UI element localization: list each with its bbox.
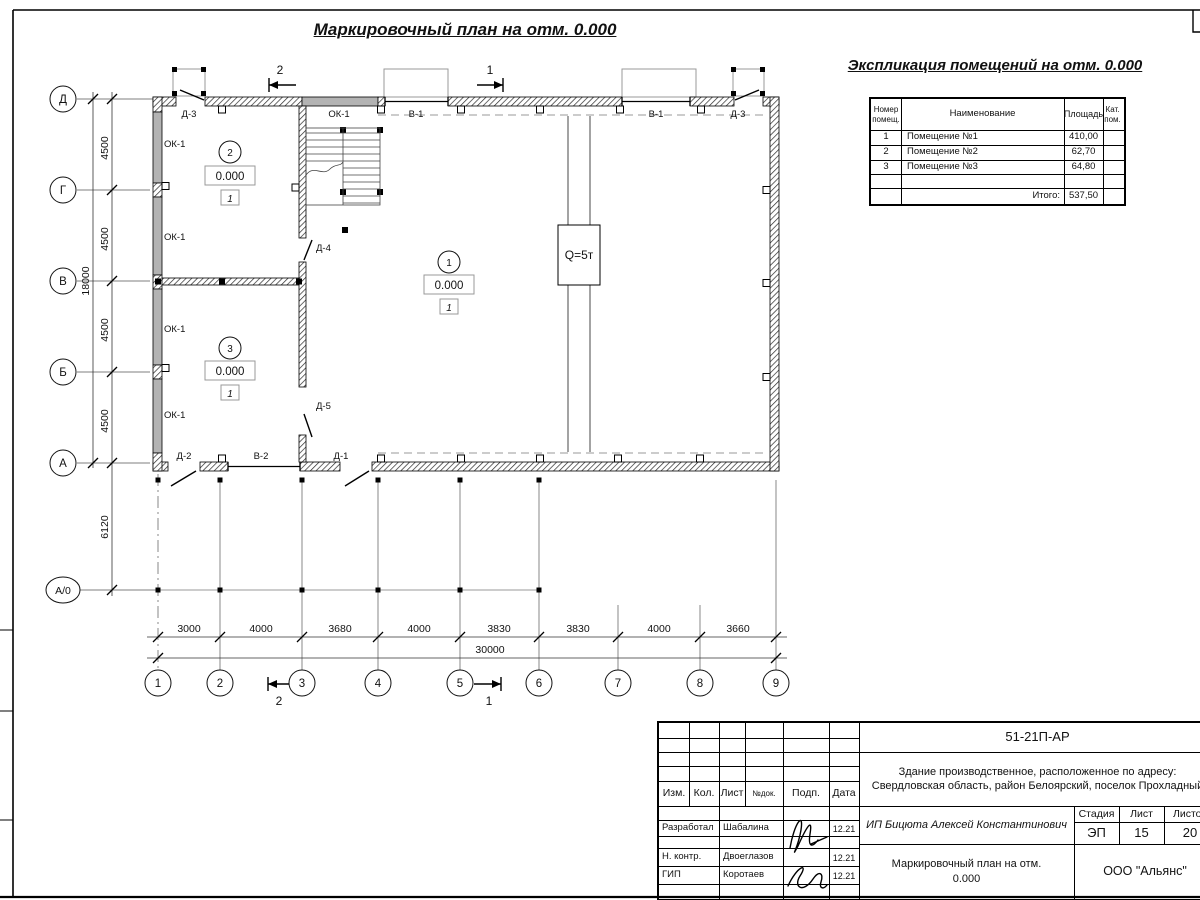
table-cell: Помещение №1: [907, 130, 1064, 145]
total-label: Итого:: [901, 188, 1060, 204]
col-header-area: Площадь: [1064, 99, 1103, 130]
svg-text:В-1: В-1: [649, 109, 664, 120]
frame-corner-box: [1193, 10, 1200, 32]
tb-role: ГИП: [662, 866, 718, 884]
axis-col-bubbles: 1 2 3 4 5 6 7 8 9: [145, 670, 789, 696]
dim-label: 3660: [726, 623, 750, 635]
table-cell: Помещение №3: [907, 160, 1064, 174]
axis-col-lines: [158, 474, 776, 670]
section-label: 2: [277, 63, 284, 77]
axis-label: 6: [536, 678, 542, 690]
window-ok1-left: [153, 197, 162, 275]
tb-col-podp: Подп.: [783, 781, 829, 806]
axis-row-bubbles: Д Г В Б А А/0: [46, 86, 80, 603]
tb-sheet-label: Лист: [1119, 806, 1164, 822]
dim-label: 4500: [99, 227, 111, 251]
total-value: 537,50: [1064, 188, 1103, 204]
svg-text:ОК-1: ОК-1: [164, 324, 185, 335]
tb-date: 12.21: [829, 851, 859, 865]
tb-sheets-label: Листов: [1164, 806, 1200, 822]
table-cell: 3: [871, 160, 901, 174]
window-ok1-left: [153, 112, 162, 183]
axis-label: 5: [457, 678, 463, 690]
svg-text:В-2: В-2: [254, 451, 269, 462]
tb-sheet-value: 15: [1119, 822, 1164, 844]
room-marker-2: 2 0.000 1: [205, 141, 255, 205]
svg-text:Д-2: Д-2: [177, 451, 192, 462]
tb-col-list: Лист: [719, 781, 745, 806]
title-block: Изм. Кол. Лист №док. Подп. Дата Разработ…: [657, 721, 1200, 900]
explication-title: Экспликация помещений на отм. 0.000: [845, 57, 1145, 74]
tb-doc-title: Маркировочный план на отм. 0.000: [859, 844, 1074, 899]
tb-name: Коротаев: [723, 866, 781, 884]
tb-col-kol: Кол.: [689, 781, 719, 806]
svg-text:Д-1: Д-1: [334, 451, 349, 462]
dim-label: 30000: [475, 644, 504, 656]
axis-label: 1: [155, 678, 161, 690]
staircase: [306, 128, 380, 205]
axis-label: А: [59, 458, 67, 470]
dim-label: 3000: [177, 623, 201, 635]
svg-text:Д-4: Д-4: [316, 243, 331, 254]
porches-canopies: [173, 69, 764, 97]
col-header-name: Наименование: [901, 99, 1064, 130]
window-ok1-left: [153, 379, 162, 453]
explication-table: Номер помещ. Наименование Площадь Кат. п…: [869, 97, 1126, 206]
axis-label: 3: [299, 678, 305, 690]
axis-label: 9: [773, 678, 779, 690]
tb-role: Н. контр.: [662, 848, 718, 866]
tb-name: Двоеглазов: [723, 848, 781, 866]
svg-text:3: 3: [227, 344, 233, 355]
tb-doc-code: 51-21П-АР: [859, 723, 1200, 752]
table-cell: 64,80: [1064, 160, 1103, 174]
section-label: 1: [486, 694, 493, 708]
svg-text:Д-3: Д-3: [731, 109, 746, 120]
svg-text:1: 1: [446, 258, 452, 269]
crane-beam: Q=5т: [558, 116, 600, 452]
tb-object: Здание производственное, расположенное п…: [865, 752, 1200, 806]
tb-stage-label: Стадия: [1074, 806, 1119, 822]
svg-text:2: 2: [227, 148, 233, 159]
window-ok1-top: [302, 97, 378, 106]
axis-label: В: [59, 276, 67, 288]
section-label: 1: [487, 63, 494, 77]
crane-capacity-label: Q=5т: [565, 248, 594, 262]
axis-label: А/0: [55, 585, 71, 597]
dim-label: 4500: [99, 318, 111, 342]
dim-label: 3680: [328, 623, 352, 635]
dim-label: 4500: [99, 136, 111, 160]
axis-row-lines: [77, 99, 156, 590]
axis-label: 8: [697, 678, 703, 690]
svg-text:1: 1: [227, 194, 233, 205]
tb-date: 12.21: [829, 869, 859, 883]
tb-col-ndok: №док.: [745, 781, 783, 806]
axis-label: 2: [217, 678, 223, 690]
axis-label: 4: [375, 678, 382, 690]
section-label: 2: [276, 694, 283, 708]
table-cell: 2: [871, 145, 901, 160]
svg-text:ОК-1: ОК-1: [164, 410, 185, 421]
dim-label: 3830: [487, 623, 511, 635]
dim-label: 4500: [99, 409, 111, 433]
signatures: [783, 806, 829, 899]
room-marker-3: 3 0.000 1: [205, 337, 255, 400]
tb-company: ООО "Альянс": [1074, 844, 1200, 899]
table-cell: 62,70: [1064, 145, 1103, 160]
dim-label: 6120: [99, 515, 111, 539]
tb-col-izm: Изм.: [659, 781, 689, 806]
dim-label: 4000: [647, 623, 671, 635]
dim-label: 18000: [80, 266, 92, 295]
table-cell: 1: [871, 130, 901, 145]
svg-text:0.000: 0.000: [435, 280, 464, 292]
tb-sheets-value: 20: [1164, 822, 1200, 844]
dim-label: 3830: [566, 623, 590, 635]
svg-text:0.000: 0.000: [216, 171, 245, 183]
col-header-num: Номер помещ.: [871, 99, 901, 130]
table-cell: 410,00: [1064, 130, 1103, 145]
tb-stage-value: ЭП: [1074, 822, 1119, 844]
tb-role: Разработал: [662, 820, 718, 836]
drawing-sheet: 4500 4500 4500 4500 18000 6120 Д Г В Б А…: [0, 0, 1200, 900]
horizontal-dimensions: 3000 4000 3680 4000 3830 3830 4000 3660 …: [147, 623, 787, 663]
table-cell: Помещение №2: [907, 145, 1064, 160]
svg-text:1: 1: [446, 303, 452, 314]
dim-label: 4000: [249, 623, 273, 635]
svg-text:В-1: В-1: [409, 109, 424, 120]
col-header-cat: Кат. пом.: [1103, 99, 1122, 130]
vertical-dimensions: 4500 4500 4500 4500 18000 6120: [80, 92, 117, 596]
svg-text:1: 1: [227, 389, 233, 400]
room-marker-1: 1 0.000 1: [424, 251, 474, 314]
svg-text:0.000: 0.000: [216, 366, 245, 378]
svg-text:Д-3: Д-3: [182, 109, 197, 120]
tb-col-data: Дата: [829, 781, 859, 806]
axis-label: Б: [59, 367, 67, 379]
dim-label: 4000: [407, 623, 431, 635]
window-ok1-left: [153, 289, 162, 365]
svg-text:ОК-1: ОК-1: [164, 139, 185, 150]
signature-1: [790, 820, 827, 852]
tb-date: 12.21: [829, 822, 859, 836]
tb-client: ИП Бицюта Алексей Константинович: [859, 806, 1074, 844]
svg-text:ОК-1: ОК-1: [328, 109, 349, 120]
drawing-title: Маркировочный план на отм. 0.000: [240, 20, 690, 40]
axis-label: Г: [60, 185, 67, 197]
svg-text:Д-5: Д-5: [316, 401, 331, 412]
svg-text:ОК-1: ОК-1: [164, 232, 185, 243]
axis-label: 7: [615, 678, 621, 690]
signature-2: [788, 868, 827, 888]
tb-name: Шабалина: [723, 820, 781, 836]
platform: [156, 478, 542, 593]
columns: [155, 127, 383, 285]
porch-posts: [172, 67, 765, 96]
axis-label: Д: [59, 94, 67, 106]
